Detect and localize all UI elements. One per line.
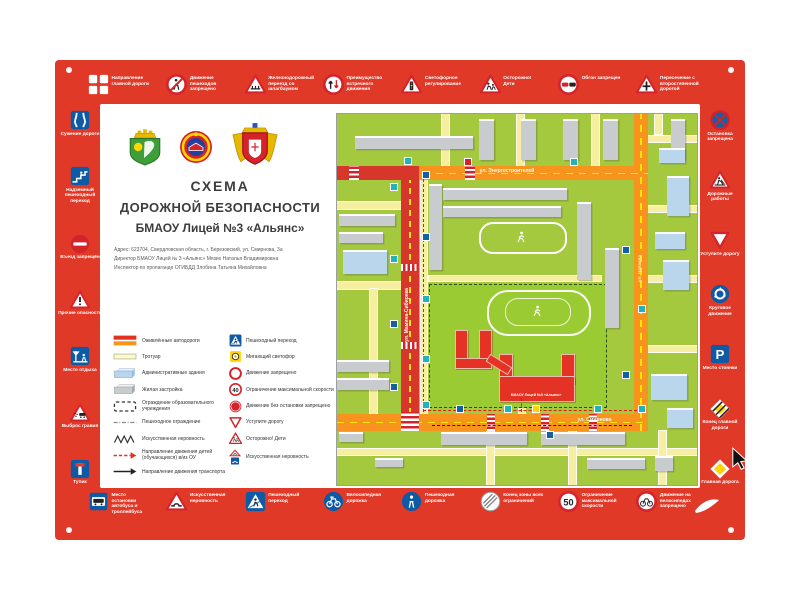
hump-sign-icon	[228, 449, 242, 466]
sign-label: Конец зоны всех ограничений	[503, 491, 543, 504]
map-building-administrative	[343, 250, 387, 274]
map-sign-marker	[623, 372, 629, 378]
legend-label: Осторожно! Дети	[246, 436, 286, 442]
street-label-smirnova: ул. Смирнова	[547, 417, 642, 423]
map-sign-marker	[423, 296, 429, 302]
map-sign-marker	[391, 184, 397, 190]
map-road-minor	[655, 114, 662, 134]
traffic-sign: Движение на велосипедах запрещено	[636, 491, 700, 525]
safety-scheme-map: ул. Энергостроителей ул. Мамина-Сибиряка…	[336, 113, 698, 486]
dead-end-icon	[70, 459, 90, 479]
map-building-residential	[603, 119, 618, 160]
sign-label: Сужение дороги	[58, 132, 102, 138]
legend-item: Движение без остановки запрещено	[228, 400, 334, 413]
map-building-administrative	[663, 260, 689, 290]
street-label-chapaeva: ул. Чапаева	[637, 255, 642, 282]
sign-label: Главная дорога	[698, 480, 742, 486]
sign-label: Пешеходный переход	[268, 491, 308, 504]
road-marking-crossing	[401, 412, 419, 431]
busy-roads-icon	[112, 334, 138, 347]
map-building-residential	[375, 458, 403, 467]
map-sign-marker	[623, 247, 629, 253]
sign-label: Велосипедная дорожка	[347, 491, 387, 504]
street-label-energostroiteley: ул. Энергостроителей	[432, 168, 582, 174]
give-way-icon	[228, 416, 242, 429]
sign-label: Выброс гравия	[58, 424, 102, 430]
map-sign-marker	[405, 158, 411, 164]
mounting-hole	[66, 67, 72, 73]
traffic-sign: Надземный пешеходный переход	[57, 166, 103, 204]
sign-label: Преимущество встречного движения	[347, 74, 387, 93]
svg-text:P: P	[716, 347, 725, 362]
oncoming-priority-icon	[323, 74, 344, 95]
school-building	[499, 376, 575, 402]
content-panel: СХЕМА ДОРОЖНОЙ БЕЗОПАСНОСТИ БМАОУ Лицей …	[100, 104, 700, 488]
no-move-icon	[228, 367, 242, 380]
legend-label: Тротуар	[142, 354, 161, 360]
map-sign-marker	[423, 234, 429, 240]
map-sign-marker	[547, 432, 553, 438]
runner-icon	[531, 304, 543, 316]
map-building-residential	[443, 206, 561, 217]
legend-label: Направление движения детей (обучающихся)…	[142, 449, 228, 461]
map-building-residential	[605, 248, 619, 328]
legend-label: Ограничение максимальной скорости	[246, 387, 334, 393]
legend-item: Мигающий светофор	[228, 350, 334, 363]
parking-icon: P	[710, 344, 730, 364]
coat-of-arms-sverdlovsk-oblast	[228, 122, 282, 177]
hump-zigzag-icon	[112, 432, 138, 445]
svg-text:50: 50	[563, 497, 573, 507]
children-route-line	[521, 398, 522, 412]
no-entry-icon	[70, 234, 90, 254]
legend-item: 40Ограничение максимальной скорости	[228, 383, 334, 396]
map-sign-marker	[571, 159, 577, 165]
traffic-sign: Круговое движение	[697, 284, 743, 317]
limit-40-icon: 40	[228, 383, 242, 396]
svg-text:40: 40	[232, 388, 238, 394]
sign-row-top: Направление главной дорогиДвижение пешех…	[88, 74, 700, 102]
sign-label: Надземный пешеходный переход	[58, 188, 102, 205]
speed-50-icon: 50	[558, 491, 579, 512]
sign-label: Конец главной дороги	[698, 420, 742, 431]
speed-bump-icon	[166, 491, 187, 512]
map-building-residential	[443, 188, 567, 200]
traffic-sign: Железнодорожный переезд со шлагбаумом	[245, 74, 309, 102]
road-marking-crossing	[349, 166, 359, 180]
address-block: Адрес: 623704, Свердловская область, г. …	[114, 246, 330, 273]
map-building-residential	[339, 232, 383, 243]
title-line-1: СХЕМА	[104, 178, 336, 194]
sign-label: Уступите дорогу	[698, 252, 742, 258]
address-line: Директор БМАОУ Лицей № 3 «Альянс» Мязих …	[114, 255, 330, 264]
school-fence-icon	[112, 400, 138, 413]
map-building-administrative	[659, 148, 685, 163]
sign-row-bottom: Место остановки автобуса и троллейбусаИс…	[88, 491, 700, 525]
traffic-sign: 50Ограничение максимальной скорости	[558, 491, 622, 525]
traffic-sign: Тупик	[57, 459, 103, 486]
traffic-light-icon	[401, 74, 422, 95]
legend-item: Направление движения транспорта	[112, 465, 228, 478]
traffic-sign: Искусственная неровность	[166, 491, 230, 525]
gravel-icon	[70, 403, 90, 423]
sign-column-left: Сужение дорогиНадземный пешеходный перех…	[57, 110, 103, 486]
sign-label: Дорожные работы	[698, 192, 742, 203]
school-building-label: БМАОУ Лицей №3 «Альянс»	[501, 393, 571, 397]
legend-item: Искусственная неровность	[112, 432, 228, 445]
traffic-sign: Место остановки автобуса и троллейбуса	[88, 491, 152, 525]
map-road-busy	[337, 166, 401, 180]
legend-label: Искусственная неровность	[142, 436, 205, 442]
traffic-sign: Осторожно! Дети	[480, 74, 544, 102]
legend-item: Тротуар	[112, 350, 228, 363]
traffic-sign: Пешеходная дорожка	[401, 491, 465, 525]
children-icon	[480, 74, 501, 95]
map-building-residential	[337, 378, 389, 390]
bus-stop-icon	[88, 491, 109, 512]
traffic-sign: Остановка запрещена	[697, 110, 743, 143]
sign-label: Прочие опасности	[58, 311, 102, 317]
legend-label: Оживлённые автодороги	[142, 338, 200, 344]
legend-item: Уступите дорогу	[228, 416, 334, 429]
traffic-sign: Место отдыха	[57, 346, 103, 373]
ped-path-icon	[401, 491, 422, 512]
map-sign-marker	[465, 159, 471, 165]
admin-building-icon	[112, 367, 138, 380]
bike-path-icon	[323, 491, 344, 512]
mounting-hole	[66, 527, 72, 533]
no-overtaking-icon	[558, 74, 579, 95]
sidewalk-icon	[112, 350, 138, 363]
secondary-road-icon	[636, 74, 657, 95]
legend-label: Уступите дорогу	[246, 419, 284, 425]
map-building-residential	[479, 119, 494, 160]
road-narrows-icon	[70, 110, 90, 130]
sign-label: Искусственная неровность	[190, 491, 230, 504]
traffic-sign: Пешеходный переход	[245, 491, 309, 525]
legend-label: Пешеходный переход	[246, 338, 297, 344]
map-sign-marker	[423, 356, 429, 362]
map-sign-marker	[533, 406, 539, 412]
sign-label: Круговое движение	[698, 306, 742, 317]
traffic-sign: Светофорное регулирование	[401, 74, 465, 102]
main-road-direction-icon	[88, 74, 109, 95]
sign-label: Въезд запрещён	[58, 255, 102, 261]
map-building-residential	[521, 119, 536, 160]
legend-item: Ограждение образовательного учреждения	[112, 400, 228, 413]
road-marking-crossing	[487, 414, 495, 431]
sign-label: Пересечение с второстепенной дорогой	[660, 74, 700, 93]
traffic-sign: Въезд запрещён	[57, 234, 103, 261]
map-sign-marker	[423, 402, 429, 408]
children-route-line	[423, 174, 424, 412]
map-road-minor	[337, 449, 697, 455]
map-building-residential	[563, 119, 578, 160]
mounting-hole	[728, 67, 734, 73]
emblems	[126, 122, 282, 176]
sign-label: Светофорное регулирование	[425, 74, 465, 87]
residential-icon	[112, 383, 138, 396]
sign-label: Осторожно! Дети	[503, 74, 543, 87]
map-building-residential	[441, 432, 527, 445]
map-sign-marker	[639, 306, 645, 312]
decorative-swoosh	[694, 497, 720, 520]
map-sign-marker	[391, 321, 397, 327]
map-road-minor	[370, 289, 377, 414]
children-route-icon	[112, 449, 138, 462]
legend-label: Пешеходное ограждение	[142, 419, 200, 425]
map-building-residential	[337, 360, 389, 372]
road-safety-poster: Направление главной дорогиДвижение пешех…	[55, 60, 745, 540]
end-main-road-icon	[710, 399, 730, 419]
children-icon	[228, 432, 242, 445]
no-bikes-icon	[636, 491, 657, 512]
flashing-signal-icon	[228, 350, 242, 363]
map-building-residential	[339, 432, 363, 442]
map-sign-marker	[457, 406, 463, 412]
sign-label: Движение пешеходов запрещено	[190, 74, 230, 93]
traffic-sign: PМесто стоянки	[697, 344, 743, 371]
railway-crossing-icon	[245, 74, 266, 95]
map-sign-marker	[391, 384, 397, 390]
give-way-icon	[710, 230, 730, 250]
sign-column-right: Остановка запрещенаДорожные работыУступи…	[697, 110, 743, 486]
map-sign-marker	[423, 172, 429, 178]
sign-label: Тупик	[58, 480, 102, 486]
ped-fence-icon	[112, 416, 138, 429]
legend-label: Направление движения транспорта	[142, 469, 225, 475]
legend-item: Пешеходное ограждение	[112, 416, 228, 429]
sign-label: Железнодорожный переезд со шлагбаумом	[268, 74, 308, 93]
ped-crossing-icon	[228, 334, 242, 347]
map-sign-marker	[391, 256, 397, 262]
legend-item: Пешеходный переход	[228, 334, 334, 347]
transport-route-icon	[112, 465, 138, 478]
legend-item: Искусственная неровность	[228, 449, 334, 466]
traffic-sign: Направление главной дороги	[88, 74, 152, 102]
address-line: Адрес: 623704, Свердловская область, г. …	[114, 246, 330, 255]
end-restrictions-icon	[480, 491, 501, 512]
legend-item: Направление движения детей (обучающихся)…	[112, 449, 228, 462]
map-sign-marker	[639, 406, 645, 412]
mouse-cursor	[731, 447, 749, 475]
sign-label: Обгон запрещен	[582, 74, 622, 82]
legend-item: Осторожно! Дети	[228, 432, 334, 445]
map-building-residential	[355, 136, 473, 149]
map-road-minor	[648, 346, 697, 352]
legend-label: Ограждение образовательного учреждения	[142, 400, 228, 412]
legend-item: Оживлённые автодороги	[112, 334, 228, 347]
roundabout-icon	[710, 284, 730, 304]
traffic-sign: Прочие опасности	[57, 290, 103, 317]
traffic-sign: Пересечение с второстепенной дорогой	[636, 74, 700, 102]
mounting-hole	[728, 527, 734, 533]
speed-hump-marking	[401, 264, 418, 271]
legend-label: Жилая застройка	[142, 387, 183, 393]
sign-label: Остановка запрещена	[698, 132, 742, 143]
legend-label: Мигающий светофор	[246, 354, 295, 360]
title-line-2: ДОРОЖНОЙ БЕЗОПАСНОСТИ	[104, 200, 336, 215]
traffic-sign: Обгон запрещен	[558, 74, 622, 102]
map-building-residential	[587, 458, 645, 469]
sign-label: Место остановки автобуса и троллейбуса	[112, 491, 152, 516]
runner-icon	[515, 230, 525, 240]
traffic-sign: Сужение дороги	[57, 110, 103, 137]
map-building-residential	[339, 214, 395, 226]
traffic-sign: Конец главной дороги	[697, 399, 743, 432]
legend-column-left: Оживлённые автодорогиТротуарАдминистрати…	[112, 334, 228, 482]
legend-label: Искусственная неровность	[246, 454, 309, 460]
legend-item: Административные здания	[112, 367, 228, 380]
map-road-minor	[429, 276, 601, 281]
sign-label: Место стоянки	[698, 366, 742, 372]
coat-of-arms-berezovsky	[126, 128, 164, 171]
sign-label: Ограничение максимальной скорости	[582, 491, 622, 510]
map-building-administrative	[667, 408, 693, 428]
map-building-administrative	[667, 176, 689, 216]
map-building-administrative	[655, 232, 685, 249]
map-building-residential	[577, 202, 591, 280]
street-label-mamina-sibiryaka: ул. Мамина-Сибиряка	[404, 288, 410, 342]
legend-item: Жилая застройка	[112, 383, 228, 396]
road-works-icon	[710, 170, 730, 190]
legend-label: Движение без остановки запрещено	[246, 403, 330, 409]
speed-hump-marking	[401, 342, 418, 349]
map-building-residential	[541, 432, 625, 445]
children-route-line	[423, 410, 637, 411]
transport-route-line	[432, 425, 632, 426]
map-sign-marker	[505, 406, 511, 412]
map-building-administrative	[651, 374, 687, 400]
map-road-minor	[592, 114, 599, 166]
title-line-3: БМАОУ Лицей №3 «Альянс»	[104, 221, 336, 235]
rest-place-icon	[70, 346, 90, 366]
main-road-icon	[710, 459, 730, 479]
address-line: Инспектор по пропаганде ОГИБДД Злобина Т…	[114, 264, 330, 273]
ped-crossing-icon	[245, 491, 266, 512]
legend-label: Административные здания	[142, 370, 205, 376]
sign-label: Место отдыха	[58, 368, 102, 374]
traffic-sign: Выброс гравия	[57, 403, 103, 430]
map-building-residential	[655, 456, 673, 471]
map-road-minor	[337, 202, 401, 209]
gibdd-emblem	[178, 129, 214, 170]
traffic-sign: Уступите дорогу	[697, 230, 743, 257]
traffic-sign: Движение пешеходов запрещено	[166, 74, 230, 102]
sign-label: Направление главной дороги	[112, 74, 152, 87]
map-road-minor	[337, 282, 401, 289]
no-pedestrians-icon	[166, 74, 187, 95]
traffic-sign: Преимущество встречного движения	[323, 74, 387, 102]
page-title: СХЕМА ДОРОЖНОЙ БЕЗОПАСНОСТИ БМАОУ Лицей …	[104, 178, 336, 235]
legend-column-right: Пешеходный переходМигающий светофорДвиже…	[228, 334, 334, 469]
sign-label: Пешеходная дорожка	[425, 491, 465, 504]
no-stop-move-icon	[228, 400, 242, 413]
map-sign-marker	[595, 406, 601, 412]
legend-label: Движение запрещено	[246, 370, 296, 376]
overpass-icon	[70, 166, 90, 186]
traffic-sign: Велосипедная дорожка	[323, 491, 387, 525]
map-building-residential	[429, 184, 442, 270]
other-danger-icon	[70, 290, 90, 310]
traffic-sign: Дорожные работы	[697, 170, 743, 203]
no-stopping-icon	[710, 110, 730, 130]
legend-item: Движение запрещено	[228, 367, 334, 380]
traffic-sign: Конец зоны всех ограничений	[480, 491, 544, 525]
